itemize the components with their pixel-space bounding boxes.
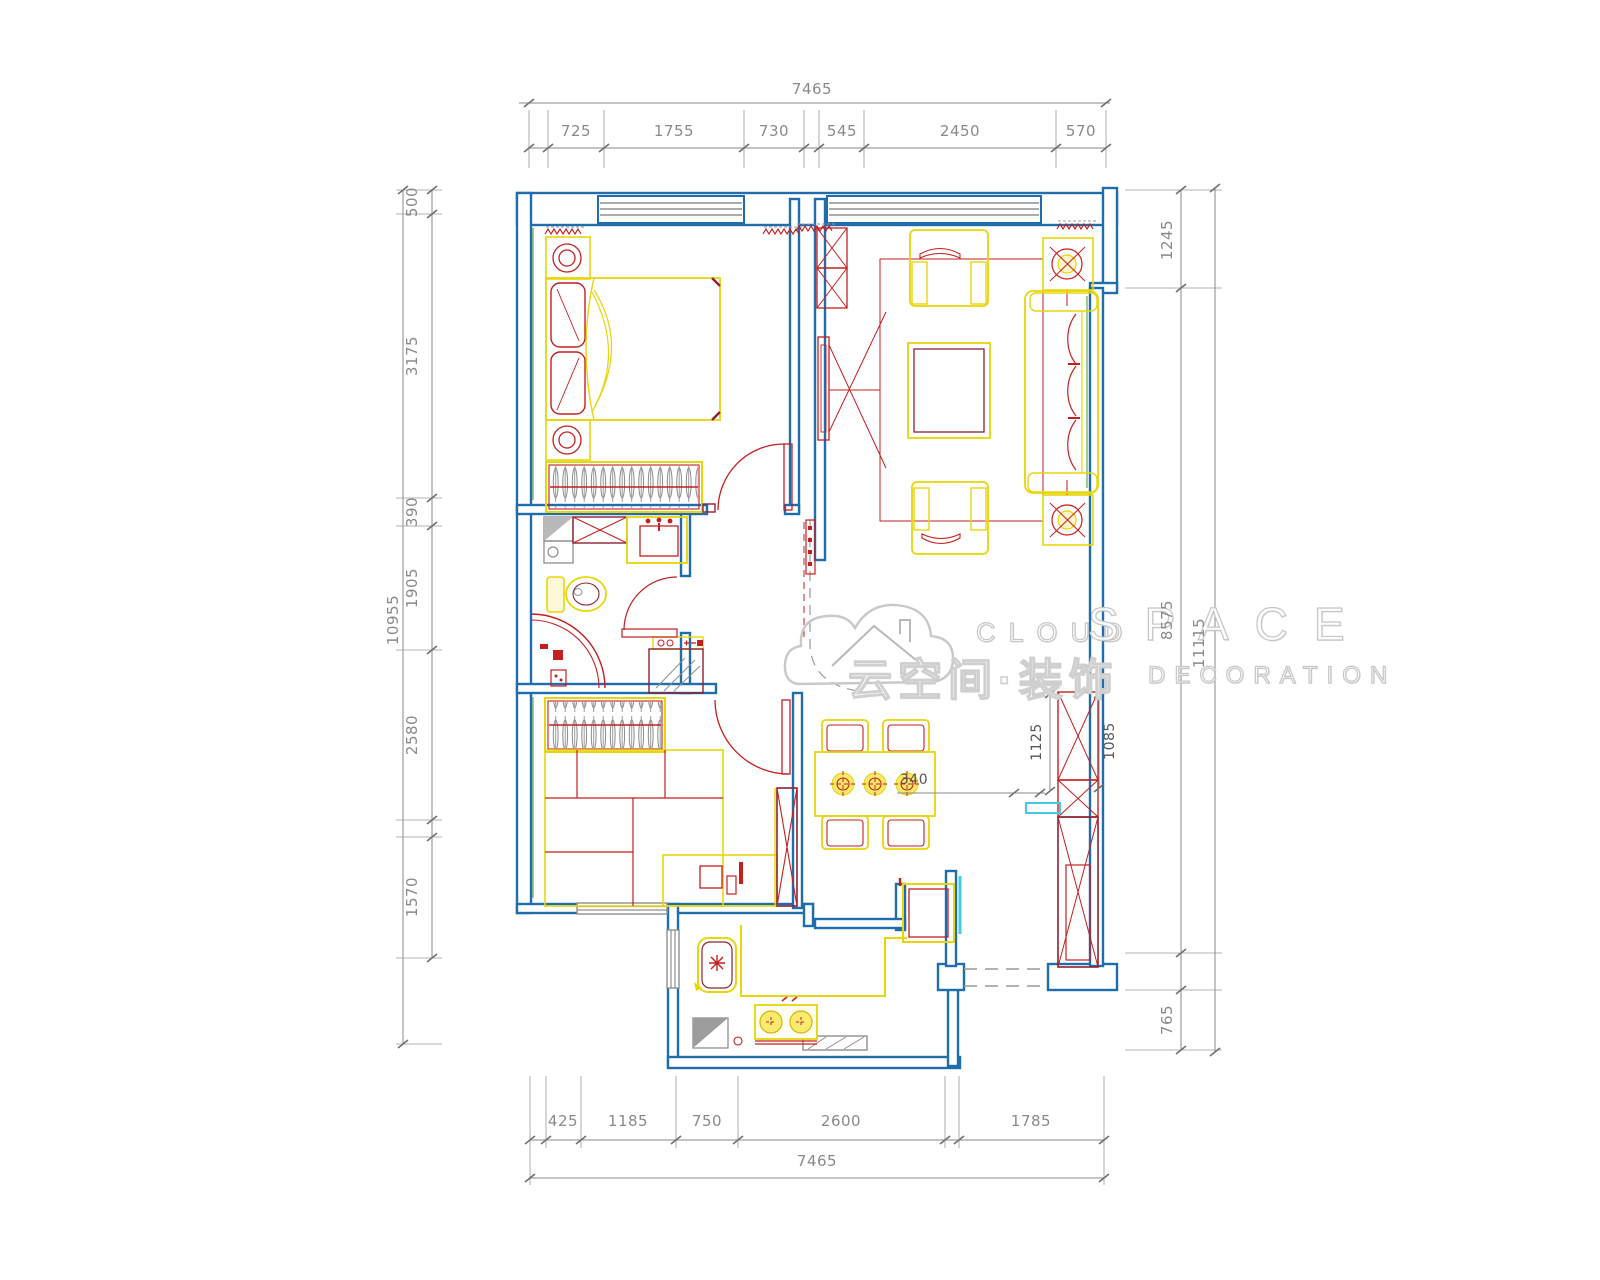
bedroom2 [545,698,797,906]
kitchen [693,876,960,1048]
gas-stove [755,997,817,1044]
double-bed [546,278,720,420]
dim-label: 1570 [403,877,421,917]
dim-label-right-total: 11115 [1190,618,1208,668]
shower-enclosure [531,614,605,688]
dim-label: 1785 [1011,1112,1051,1130]
dim-label: 2600 [821,1112,861,1130]
bath-cabinet [573,517,627,543]
wardrobe-master [546,462,715,512]
floor-plan-canvas: CLOUD SPACE 云空间·装饰 DECORATION 7465 725 1… [0,0,1600,1280]
dining-chair [883,720,929,753]
toilet [547,577,606,612]
counter-edge [741,925,907,996]
drain [734,1037,742,1045]
tatami-bed [545,750,723,906]
bathroom-door [622,577,677,637]
living-room [817,228,1098,554]
dim-label: 570 [1066,122,1096,140]
kitchen-sink [694,938,736,992]
dim-label: 765 [1158,1005,1176,1035]
dim-label-bottom-total: 7465 [797,1152,837,1170]
dining-chair [883,816,929,849]
tv-set [818,312,886,468]
dim-label: 1245 [1158,220,1176,260]
nightstand-bottom [546,420,590,460]
vanity-sink [627,517,687,563]
window-living-north [827,196,1041,223]
watermark-decoration-text: DECORATION [1148,662,1396,690]
dim-label: 8575 [1158,600,1176,640]
dining-chair [822,720,868,753]
bedroom1-door [718,444,792,510]
armchair-bottom [912,482,988,554]
watermark-space-text: SPACE [1088,597,1371,651]
bathroom [531,517,703,693]
watermark-brand-cn: 云空间·装饰 [848,644,1119,708]
cyan-highlight [1026,803,1060,813]
dim-label: 425 [548,1112,578,1130]
nightstand-top [546,237,590,279]
dim-label-left-total: 10955 [384,595,402,645]
dim-label-top-total: 7465 [792,80,832,98]
dim-label: 1755 [654,122,694,140]
side-table-lamp-bottom [1043,480,1093,545]
side-table-lamp-top [1043,238,1093,306]
armchair-top [910,230,988,306]
window-kitchen-west [667,930,679,988]
coffee-table [908,343,990,438]
flue-duct [693,1018,728,1048]
dim-label: 1185 [608,1112,648,1130]
bedroom2-door [715,700,790,774]
entry-door-opening [964,969,1048,986]
dim-label: 390 [403,497,421,527]
dim-label: 1905 [403,568,421,608]
dining-chair [822,816,868,849]
window-bedroom2-south [577,903,667,914]
dim-label-interior: 340 [900,772,928,788]
dim-label-interior: 1085 [1102,722,1118,760]
washing-machine [544,517,573,563]
dim-label: 750 [692,1112,722,1130]
master-bedroom [546,237,792,512]
dim-label: 730 [759,122,789,140]
dim-label: 2580 [403,715,421,755]
dim-label: 500 [403,187,421,217]
dim-label: 3175 [403,336,421,376]
dim-label: 545 [827,122,857,140]
window-bedroom1-north [598,196,744,223]
desk [663,855,777,906]
dim-label-interior: 1125 [1029,723,1045,761]
wardrobe-bedroom2 [545,698,665,752]
dim-label: 725 [561,122,591,140]
dim-label: 2450 [940,122,980,140]
